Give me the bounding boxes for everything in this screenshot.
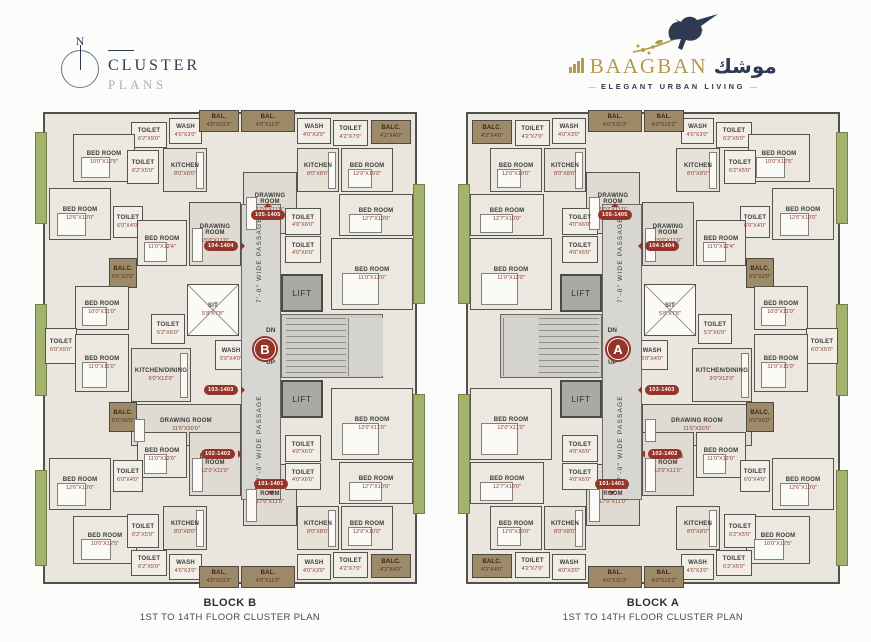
room-bed-room: BED ROOM12'0"X10'0" [341, 506, 393, 550]
green-balcony-strip [458, 184, 470, 304]
room-label: BALC. [113, 266, 132, 273]
room-bal-: BAL.4'0"X11'0" [588, 110, 642, 132]
room-label: WASH [688, 124, 707, 131]
entry-arrow-icon [634, 242, 642, 250]
room-toilet: TOILET6'2"X5'0" [131, 122, 167, 148]
green-balcony-strip [35, 132, 47, 224]
room-bed-room: BED ROOM12'0"X10'0" [490, 148, 542, 192]
room-toilet: TOILET6'0"X5'0" [806, 328, 838, 364]
room-dimensions: 4'2"X7'0" [340, 134, 362, 140]
room-dimensions: 11'0"X11'0" [767, 364, 794, 370]
room-kitchen: KITCHEN8'0"X8'0" [163, 148, 207, 192]
room-toilet: TOILET6'2"X5'0" [724, 514, 756, 548]
block-a-plan: TOILET6'2"X5'0"WASH4'0"X3'0"BAL.4'0"X10'… [458, 108, 848, 590]
room-toilet: TOILET4'0"X6'0" [562, 236, 598, 263]
room-toilet: TOILET4'2"X7'0" [515, 552, 550, 578]
room-kitchen: KITCHEN8'0"X8'0" [676, 148, 720, 192]
room-kitchen: KITCHEN8'0"X8'0" [544, 148, 586, 192]
room-label: WASH [305, 124, 324, 131]
room-toilet: TOILET5'2"X6'0" [151, 314, 185, 344]
room-label: TOILET [157, 322, 179, 329]
room-wash: WASH4'0"X3'0" [552, 554, 586, 580]
room-label: BAL. [657, 114, 672, 121]
room-bal-: BAL.4'0"X11'0" [241, 110, 295, 132]
room-label: BAL. [608, 114, 623, 121]
green-balcony-strip [413, 394, 425, 514]
block-b-caption-sub: 1ST TO 14TH FLOOR CLUSTER PLAN [35, 612, 425, 623]
unit-number-badge: 103-1403 [645, 385, 679, 395]
room-toilet: TOILET6'2"X5'0" [127, 514, 159, 548]
room-label: BED ROOM [764, 356, 799, 363]
room-label: WASH [176, 124, 195, 131]
room-label: BED ROOM [786, 477, 821, 484]
room-label: BAL. [212, 570, 227, 577]
room-dimensions: 11'6"X20'0" [172, 426, 200, 432]
room-dimensions: 4'2"X4'0" [481, 567, 503, 573]
unit-number-badge: 101-1401 [254, 479, 288, 489]
unit-number-badge: 102-1402 [648, 449, 682, 459]
room-label: TOILET [569, 442, 591, 449]
room-label: BED ROOM [85, 301, 120, 308]
room-wash: WASH4'0"X3'0" [169, 554, 202, 580]
room-balc-: BALC.4'2"X4'0" [371, 120, 411, 144]
room-kitchen-dining: KITCHEN/DINING9'0"X12'0" [131, 348, 191, 402]
room-label: TOILET [723, 556, 745, 563]
room-label: BALC. [750, 266, 769, 273]
stair-landing [348, 318, 383, 376]
room-label: KITCHEN [304, 163, 332, 170]
lift: LIFT [281, 274, 323, 312]
room-dimensions: 12'7"X10'0" [493, 216, 521, 222]
room-dimensions: 4'0"X10'2" [207, 578, 232, 584]
block-letter-badge: A [605, 336, 631, 362]
room-label: TOILET [339, 126, 361, 133]
room-toilet: TOILET4'2"X7'0" [333, 552, 368, 578]
room-dimensions: 12'0"X11'0" [201, 468, 229, 474]
room-dimensions: 4'0"X11'0" [603, 122, 628, 128]
block-letter-badge: B [252, 336, 278, 362]
room-label: BAL. [212, 114, 227, 121]
room-label: DRAWING ROOM [671, 418, 723, 425]
room-dimensions: 6'0"X6'0" [749, 418, 771, 424]
green-balcony-strip [35, 470, 47, 566]
room-label: TOILET [117, 215, 139, 222]
room-label: KITCHEN [684, 521, 712, 528]
room-label: TOILET [704, 322, 726, 329]
room-label: BALC. [482, 559, 501, 566]
room-label: TOILET [138, 556, 160, 563]
room-toilet: TOILET4'0"X6'0" [562, 435, 598, 462]
room-bed-room: BED ROOM12'7"X10'0" [470, 462, 544, 504]
entry-arrow-icon [637, 450, 645, 458]
room-toilet: TOILET6'2"X5'0" [716, 550, 752, 576]
room-label: BALC. [482, 125, 501, 132]
room-dimensions: 4'0"X11'0" [256, 122, 281, 128]
room-bed-room: BED ROOM11'0"X12'4" [696, 220, 746, 266]
room-label: TOILET [292, 470, 314, 477]
unit-number-badge: 101-1401 [595, 479, 629, 489]
entry-arrow-icon [608, 491, 616, 499]
room-bal-: BAL.4'0"X10'2" [644, 566, 684, 588]
room-label: WASH [176, 560, 195, 567]
room-dimensions: 4'2"X7'0" [522, 134, 544, 140]
unit-number-badge: 103-1403 [204, 385, 238, 395]
unit-number-badge: 104-1404 [645, 241, 679, 251]
room-dimensions: 6'0"X4'0" [117, 477, 139, 483]
room-dimensions: 11'0"X12'0" [148, 456, 176, 462]
room-label: BALC. [113, 410, 132, 417]
room-label: KITCHEN [304, 521, 332, 528]
room-label: BED ROOM [704, 448, 739, 455]
room-dimensions: 4'0"X3'0" [558, 132, 580, 138]
room-label: BED ROOM [359, 208, 394, 215]
room-kitchen-dining: KITCHEN/DINING9'0"X12'0" [692, 348, 752, 402]
room-dimensions: 5'0"X4'0" [220, 356, 242, 362]
room-label: TOILET [117, 469, 139, 476]
room-dimensions: 6'2"X5'0" [723, 136, 745, 142]
room-dimensions: 11'0"X12'4" [707, 244, 735, 250]
room-dimensions: 12'7"X10'0" [362, 484, 390, 490]
block-a-caption-sub: 1ST TO 14TH FLOOR CLUSTER PLAN [458, 612, 848, 623]
room-toilet: TOILET4'2"X7'0" [333, 120, 368, 146]
logo-bars-icon [569, 58, 584, 73]
room-dimensions: 12'6"X10'0" [789, 215, 817, 221]
room-label: BED ROOM [88, 533, 123, 540]
room-dimensions: 4'0"X3'0" [687, 568, 709, 574]
room-label: KITCHEN [684, 163, 712, 170]
room-bed-room: BED ROOM11'0"X12'4" [137, 220, 187, 266]
room-dimensions: 12'0"X10'0" [353, 171, 381, 177]
green-balcony-strip [836, 132, 848, 224]
room-bed-room: BED ROOM12'6"X10'0" [49, 458, 111, 510]
entry-arrow-icon [241, 386, 249, 394]
room-bed-room: BED ROOM12'0"X11'0" [470, 388, 552, 460]
room-bed-room: BED ROOM10'0"X11'0" [754, 286, 808, 330]
stairs-dn-label: DN [266, 327, 275, 334]
room-dimensions: 5'0"X4'0" [641, 356, 663, 362]
room-kitchen: KITCHEN8'0"X8'0" [544, 506, 586, 550]
room-dimensions: 11'0"X11'0" [88, 364, 115, 370]
room-dimensions: 6'2"X5'0" [132, 532, 154, 538]
room-label: BED ROOM [350, 163, 385, 170]
room-dimensions: 4'0"X3'0" [175, 568, 197, 574]
room-dimensions: 4'0"X11'0" [256, 578, 281, 584]
room-dimensions: 6'2"X5'0" [138, 136, 160, 142]
room-dimensions: 8'0"X8'0" [687, 529, 709, 535]
room-label: TOILET [292, 215, 314, 222]
entry-arrow-icon [241, 242, 249, 250]
room-bal-: BAL.4'0"X10'2" [199, 110, 239, 132]
room-bed-room: BED ROOM10'0"X12'5" [73, 134, 135, 182]
brand-tagline-text: ELEGANT URBAN LIVING [601, 82, 745, 91]
room-dimensions: 6'2"X5'0" [723, 564, 745, 570]
room-dimensions: 6'0"X4'0" [744, 223, 766, 229]
room-dimensions: 6'2"X5'0" [729, 168, 751, 174]
entry-arrow-icon [238, 450, 246, 458]
room-label: TOILET [292, 442, 314, 449]
room-drawing-room: DRAWING ROOM12'0"X11'0" [189, 432, 241, 496]
room-dimensions: 4'0"X3'0" [687, 132, 709, 138]
room-dimensions: 5'8"X7'8" [659, 311, 681, 317]
room-label: TOILET [50, 339, 72, 346]
room-bal-: BAL.4'0"X11'0" [241, 566, 295, 588]
room-dimensions: 5'2"X6'0" [704, 330, 726, 336]
room-bed-room: BED ROOM10'0"X11'0" [75, 286, 129, 330]
green-balcony-strip [458, 394, 470, 514]
block-a-caption-title: BLOCK A [458, 597, 848, 609]
room-label: BED ROOM [350, 521, 385, 528]
sheet-title: CLUSTER PLANS [108, 50, 200, 93]
room-balc-: BALC.6'6"X2'0" [109, 258, 137, 288]
room-wash: WASH4'0"X3'0" [297, 118, 331, 144]
room-label: BED ROOM [87, 151, 122, 158]
room-label: TOILET [569, 470, 591, 477]
room-label: TOILET [339, 558, 361, 565]
room-dimensions: 12'0"X11'0" [358, 425, 386, 431]
room-label: BED ROOM [490, 476, 525, 483]
room-bal-: BAL.4'0"X10'2" [199, 566, 239, 588]
room-dimensions: 17'0"X11'0" [599, 499, 627, 505]
room-label: TOILET [811, 339, 833, 346]
unit-number-badge: 105-1405 [598, 210, 632, 220]
room-toilet: TOILET6'0"X4'0" [113, 460, 143, 492]
room-label: TOILET [723, 128, 745, 135]
staircase: DNUP [281, 314, 383, 378]
lift: LIFT [560, 380, 602, 418]
room-dimensions: 11'0"X13'0" [497, 275, 525, 281]
room-dimensions: 11'0"X12'0" [707, 456, 735, 462]
room-dimensions: 10'0"X12'5" [764, 541, 792, 547]
cluster-plan-sheet: N CLUSTER PLANS BAAGBAN موشك — ELEGANT U [0, 0, 871, 642]
room-dimensions: 4'0"X3'0" [303, 568, 325, 574]
room-label: WASH [560, 560, 579, 567]
room-dimensions: 4'0"X6'0" [569, 250, 591, 256]
sheet-title-line1: CLUSTER [108, 54, 200, 75]
room-dimensions: 12'0"X11'0" [497, 425, 525, 431]
room-label: BED ROOM [63, 207, 98, 214]
room-toilet: TOILET4'0"X6'0" [285, 435, 321, 462]
room-dimensions: 6'2"X5'0" [729, 532, 751, 538]
room-dimensions: 4'2"X4'0" [380, 567, 402, 573]
room-toilet: TOILET4'0"X6'0" [285, 208, 321, 235]
room-dimensions: 12'7"X10'0" [362, 216, 390, 222]
brand-name-latin: BAAGBAN [590, 54, 708, 79]
room-bed-room: BED ROOM12'7"X10'0" [339, 194, 413, 236]
room-label: KITCHEN [171, 521, 199, 528]
room-dimensions: 4'0"X10'2" [652, 122, 677, 128]
brand-name-arabic: موشك [714, 54, 777, 78]
green-balcony-strip [836, 470, 848, 566]
room-dimensions: 9'0"X12'0" [149, 376, 174, 382]
room-toilet: TOILET6'0"X4'0" [740, 460, 770, 492]
room-drawing-room: DRAWING ROOM15'0"X11'0" [642, 202, 694, 266]
compass-needle [80, 45, 81, 70]
room-label: SIT [665, 303, 675, 310]
room-dimensions: 12'6"X10'0" [66, 215, 94, 221]
room-bed-room: BED ROOM12'6"X10'0" [772, 458, 834, 510]
bird-icon [625, 12, 721, 56]
room-wash: WASH4'0"X3'0" [297, 554, 331, 580]
room-dimensions: 10'0"X12'5" [91, 541, 119, 547]
room-wash: WASH4'0"X3'0" [681, 118, 714, 144]
room-toilet: TOILET6'2"X5'0" [127, 150, 159, 184]
room-dimensions: 12'0"X11'0" [654, 468, 682, 474]
room-bed-room: BED ROOM12'0"X11'0" [331, 388, 413, 460]
room-label: TOILET [521, 558, 543, 565]
room-bed-room: BED ROOM11'0"X13'0" [470, 238, 552, 310]
room-toilet: TOILET6'2"X5'0" [716, 122, 752, 148]
room-dimensions: 12'6"X10'0" [66, 485, 94, 491]
room-label: BED ROOM [786, 207, 821, 214]
staircase: DNUP [500, 314, 602, 378]
room-dimensions: 10'0"X12'5" [90, 159, 118, 165]
room-dimensions: 4'0"X6'0" [569, 477, 591, 483]
room-dimensions: 12'0"X10'0" [502, 171, 530, 177]
room-dimensions: 4'0"X11'0" [603, 578, 628, 584]
room-dimensions: 6'0"X4'0" [744, 477, 766, 483]
room-dimensions: 17'0"X11'0" [256, 499, 284, 505]
brand-logo: BAAGBAN موشك — ELEGANT URBAN LIVING — [563, 12, 783, 91]
room-label: TOILET [138, 128, 160, 135]
room-toilet: TOILET6'2"X5'0" [131, 550, 167, 576]
room-dimensions: 6'2"X5'0" [132, 168, 154, 174]
room-kitchen: KITCHEN8'0"X8'0" [297, 506, 339, 550]
room-label: BAL. [608, 570, 623, 577]
room-dimensions: 4'2"X7'0" [522, 566, 544, 572]
room-kitchen: KITCHEN8'0"X8'0" [297, 148, 339, 192]
stair-treads [539, 318, 599, 376]
room-dimensions: 4'0"X10'2" [207, 122, 232, 128]
room-dimensions: 8'0"X8'0" [554, 171, 576, 177]
room-dimensions: 4'0"X6'0" [569, 449, 591, 455]
room-label: TOILET [569, 243, 591, 250]
stairs-dn-label: DN [608, 327, 617, 334]
stair-landing [503, 318, 538, 376]
room-label: TOILET [744, 215, 766, 222]
room-toilet: TOILET6'2"X5'0" [724, 150, 756, 184]
room-label: WASH [560, 124, 579, 131]
room-dimensions: 4'0"X6'0" [292, 222, 314, 228]
room-toilet: TOILET4'2"X7'0" [515, 120, 550, 146]
room-label: BALC. [381, 125, 400, 132]
room-label: BED ROOM [490, 208, 525, 215]
room-dimensions: 4'0"X6'0" [569, 222, 591, 228]
room-label: BED ROOM [359, 476, 394, 483]
room-dimensions: 6'0"X5'0" [50, 347, 72, 353]
room-label: WASH [305, 560, 324, 567]
room-label: WASH [222, 348, 241, 355]
room-label: BED ROOM [63, 477, 98, 484]
north-compass-icon: N [57, 34, 103, 96]
room-dimensions: 6'0"X5'0" [811, 347, 833, 353]
room-bed-room: BED ROOM12'0"X10'0" [341, 148, 393, 192]
room-dimensions: 8'0"X8'0" [174, 171, 196, 177]
room-sit: SIT5'8"X7'8" [644, 284, 696, 336]
room-dimensions: 6'0"X6'0" [112, 418, 134, 424]
room-label: DRAWING ROOM [644, 224, 692, 237]
room-label: KITCHEN [551, 163, 579, 170]
room-balc-: BALC.6'0"X6'0" [746, 402, 774, 432]
room-dimensions: 10'0"X12'5" [765, 159, 793, 165]
room-label: TOILET [521, 126, 543, 133]
room-sit: SIT5'8"X7'8" [187, 284, 239, 336]
room-dimensions: 4'2"X4'0" [380, 133, 402, 139]
stair-treads [286, 318, 346, 376]
green-balcony-strip [413, 184, 425, 304]
room-dimensions: 4'0"X3'0" [303, 132, 325, 138]
lift: LIFT [281, 380, 323, 418]
room-label: BAL. [261, 114, 276, 121]
room-toilet: TOILET5'2"X6'0" [698, 314, 732, 344]
block-b-plan: TOILET6'2"X5'0"WASH4'0"X3'0"BAL.4'0"X10'… [35, 108, 425, 590]
room-balc-: BALC.6'0"X6'0" [109, 402, 137, 432]
room-balc-: BALC.4'2"X4'0" [472, 554, 512, 578]
room-dimensions: 8'0"X8'0" [307, 529, 329, 535]
room-label: WASH [643, 348, 662, 355]
room-dimensions: 5'8"X7'8" [202, 311, 224, 317]
room-label: BED ROOM [145, 236, 180, 243]
room-label: SIT [208, 303, 218, 310]
room-kitchen: KITCHEN8'0"X8'0" [163, 506, 207, 550]
room-label: BED ROOM [494, 267, 529, 274]
room-dimensions: 4'0"X6'0" [292, 449, 314, 455]
room-toilet: TOILET6'0"X5'0" [45, 328, 77, 364]
room-bed-room: BED ROOM12'7"X10'0" [339, 462, 413, 504]
room-wash: WASH4'0"X3'0" [552, 118, 586, 144]
room-label: BED ROOM [499, 163, 534, 170]
room-dimensions: 12'0"X10'0" [353, 529, 381, 535]
room-dimensions: 4'0"X3'0" [558, 568, 580, 574]
room-label: BED ROOM [145, 448, 180, 455]
room-label: BED ROOM [761, 533, 796, 540]
room-dimensions: 4'2"X4'0" [481, 133, 503, 139]
room-label: KITCHEN [171, 163, 199, 170]
room-label: BED ROOM [85, 356, 120, 363]
room-label: BED ROOM [355, 417, 390, 424]
room-label: DRAWING ROOM [191, 224, 239, 237]
room-dimensions: 10'0"X11'0" [767, 309, 795, 315]
sheet-title-line2: PLANS [108, 77, 200, 93]
unit-number-badge: 102-1402 [201, 449, 235, 459]
compass-dial [61, 50, 99, 88]
entry-arrow-icon [611, 199, 619, 207]
title-overline [108, 50, 134, 51]
room-label: KITCHEN/DINING [696, 368, 748, 375]
room-dimensions: 4'0"X10'2" [652, 578, 677, 584]
room-label: BAL. [657, 570, 672, 577]
room-bed-room: BED ROOM11'0"X12'0" [696, 432, 746, 478]
room-wash: WASH4'0"X3'0" [681, 554, 714, 580]
room-bed-room: BED ROOM12'0"X10'0" [490, 506, 542, 550]
room-label: BED ROOM [499, 521, 534, 528]
room-dimensions: 8'0"X8'0" [307, 171, 329, 177]
block-b-caption: BLOCK B 1ST TO 14TH FLOOR CLUSTER PLAN [35, 597, 425, 623]
room-dimensions: 11'0"X12'4" [148, 244, 176, 250]
room-bed-room: BED ROOM11'0"X11'0" [754, 334, 808, 392]
room-bed-room: BED ROOM11'0"X11'0" [75, 334, 129, 392]
room-dimensions: 9'0"X12'0" [710, 376, 735, 382]
room-dimensions: 11'0"X13'0" [358, 275, 386, 281]
room-label: WASH [688, 560, 707, 567]
block-b-caption-title: BLOCK B [35, 597, 425, 609]
room-dimensions: 6'6"X2'0" [112, 274, 134, 280]
room-dimensions: 4'2"X7'0" [340, 566, 362, 572]
room-bal-: BAL.4'0"X11'0" [588, 566, 642, 588]
room-kitchen: KITCHEN8'0"X8'0" [676, 506, 720, 550]
block-a-caption: BLOCK A 1ST TO 14TH FLOOR CLUSTER PLAN [458, 597, 848, 623]
entry-arrow-icon [267, 491, 275, 499]
room-label: TOILET [729, 160, 751, 167]
